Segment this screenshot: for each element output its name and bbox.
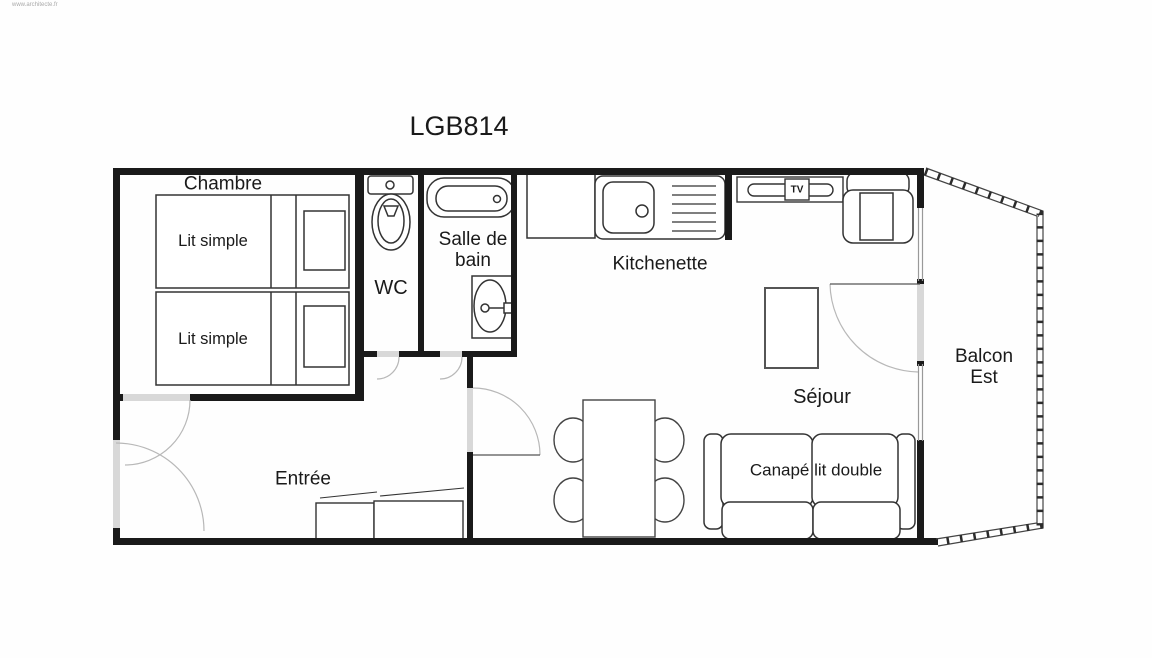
cabinet-door-line	[380, 488, 464, 496]
dining-table	[583, 400, 655, 537]
side-table	[765, 288, 818, 368]
bathroom-sink-icon	[472, 276, 513, 338]
door-arc-sejour	[473, 388, 540, 455]
armchair	[843, 172, 913, 243]
entry-cabinet	[316, 488, 464, 540]
cabinet-door-line	[320, 492, 377, 498]
cabinet-box	[374, 501, 463, 540]
wall-bath-right	[511, 175, 517, 357]
door-arc-bath	[440, 357, 462, 379]
wall-chambre-right	[355, 175, 364, 400]
room-label-chambre: Chambre	[184, 175, 262, 196]
room-label-balcon-line1: Balcon	[955, 346, 1013, 367]
kitchenette-counter	[527, 174, 725, 239]
sofa-seat-cushion	[813, 502, 900, 539]
door-opening-balcony	[917, 284, 924, 361]
door-arc-wc	[377, 357, 399, 379]
furniture-label-lit-simple-1: Lit simple	[178, 232, 248, 250]
wall-right	[917, 440, 924, 538]
wall-bottom	[113, 538, 938, 545]
kitchen-cabinet	[527, 174, 595, 238]
page-title: LGB814	[409, 112, 508, 142]
watermark: www.architecte.fr	[12, 2, 58, 9]
wall-wc-bath-divider	[418, 175, 424, 357]
furniture-label-lit-simple-2: Lit simple	[178, 330, 248, 348]
wall-kitchen-stub	[725, 175, 732, 240]
room-label-sejour: Séjour	[793, 386, 851, 408]
pillow	[304, 211, 345, 270]
door-arc-entrance	[116, 443, 204, 531]
sink-basin	[474, 280, 506, 332]
room-label-entree: Entrée	[275, 470, 331, 491]
toilet-icon	[368, 176, 413, 250]
room-label-salle-de-bain-line2: bain	[439, 250, 508, 271]
door-opening-bath	[440, 351, 462, 357]
room-label-balcon: Balcon Est	[955, 346, 1013, 388]
room-label-salle-de-bain-line1: Salle de	[439, 229, 508, 250]
dining-set	[554, 400, 684, 537]
door-opening-entrance	[113, 440, 120, 528]
floor-plan: LGB814 www.architecte.fr Chambre Lit sim…	[0, 0, 1152, 658]
cabinet-box	[316, 503, 374, 540]
bathtub-drain	[494, 196, 501, 203]
room-label-kitchenette: Kitchenette	[612, 255, 707, 276]
wall-right	[917, 175, 924, 208]
bathtub-icon	[427, 178, 515, 217]
room-label-wc: WC	[374, 277, 407, 299]
sofa-seat-cushion	[722, 502, 813, 539]
door-arc-balcony	[830, 284, 918, 372]
tv-label: TV	[791, 185, 804, 196]
pillow	[304, 306, 345, 367]
armchair-seat	[860, 193, 893, 240]
room-label-balcon-line2: Est	[955, 367, 1013, 388]
floor-plan-drawing	[0, 0, 1152, 658]
kitchen-sink-drain	[636, 205, 648, 217]
sink-drain	[481, 304, 489, 312]
furniture-label-canape: Canapé lit double	[750, 462, 882, 481]
door-opening-wc	[377, 351, 399, 357]
room-label-salle-de-bain: Salle de bain	[439, 229, 508, 271]
toilet-button	[386, 181, 394, 189]
door-opening-chambre	[123, 394, 190, 401]
sofa-bed	[704, 434, 915, 539]
door-arc-chambre	[125, 400, 190, 465]
sofa-arm-left	[704, 434, 723, 529]
door-opening-sejour	[467, 388, 473, 452]
